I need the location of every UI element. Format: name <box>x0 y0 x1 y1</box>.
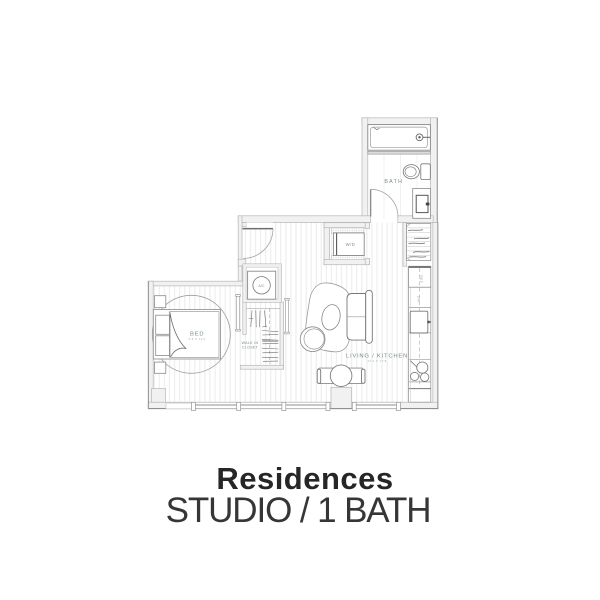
svg-text:12'2 X 17'8: 12'2 X 17'8 <box>367 359 386 363</box>
svg-text:W/D: W/D <box>346 242 356 247</box>
svg-text:WALK IN: WALK IN <box>242 341 259 345</box>
svg-text:BATH: BATH <box>384 179 403 185</box>
svg-text:DW: DW <box>417 296 421 303</box>
svg-text:CLOSET: CLOSET <box>242 346 259 350</box>
svg-text:REF: REF <box>419 275 423 283</box>
svg-text:A/C: A/C <box>258 284 265 288</box>
svg-text:9'8 X 11'0: 9'8 X 11'0 <box>189 337 206 341</box>
